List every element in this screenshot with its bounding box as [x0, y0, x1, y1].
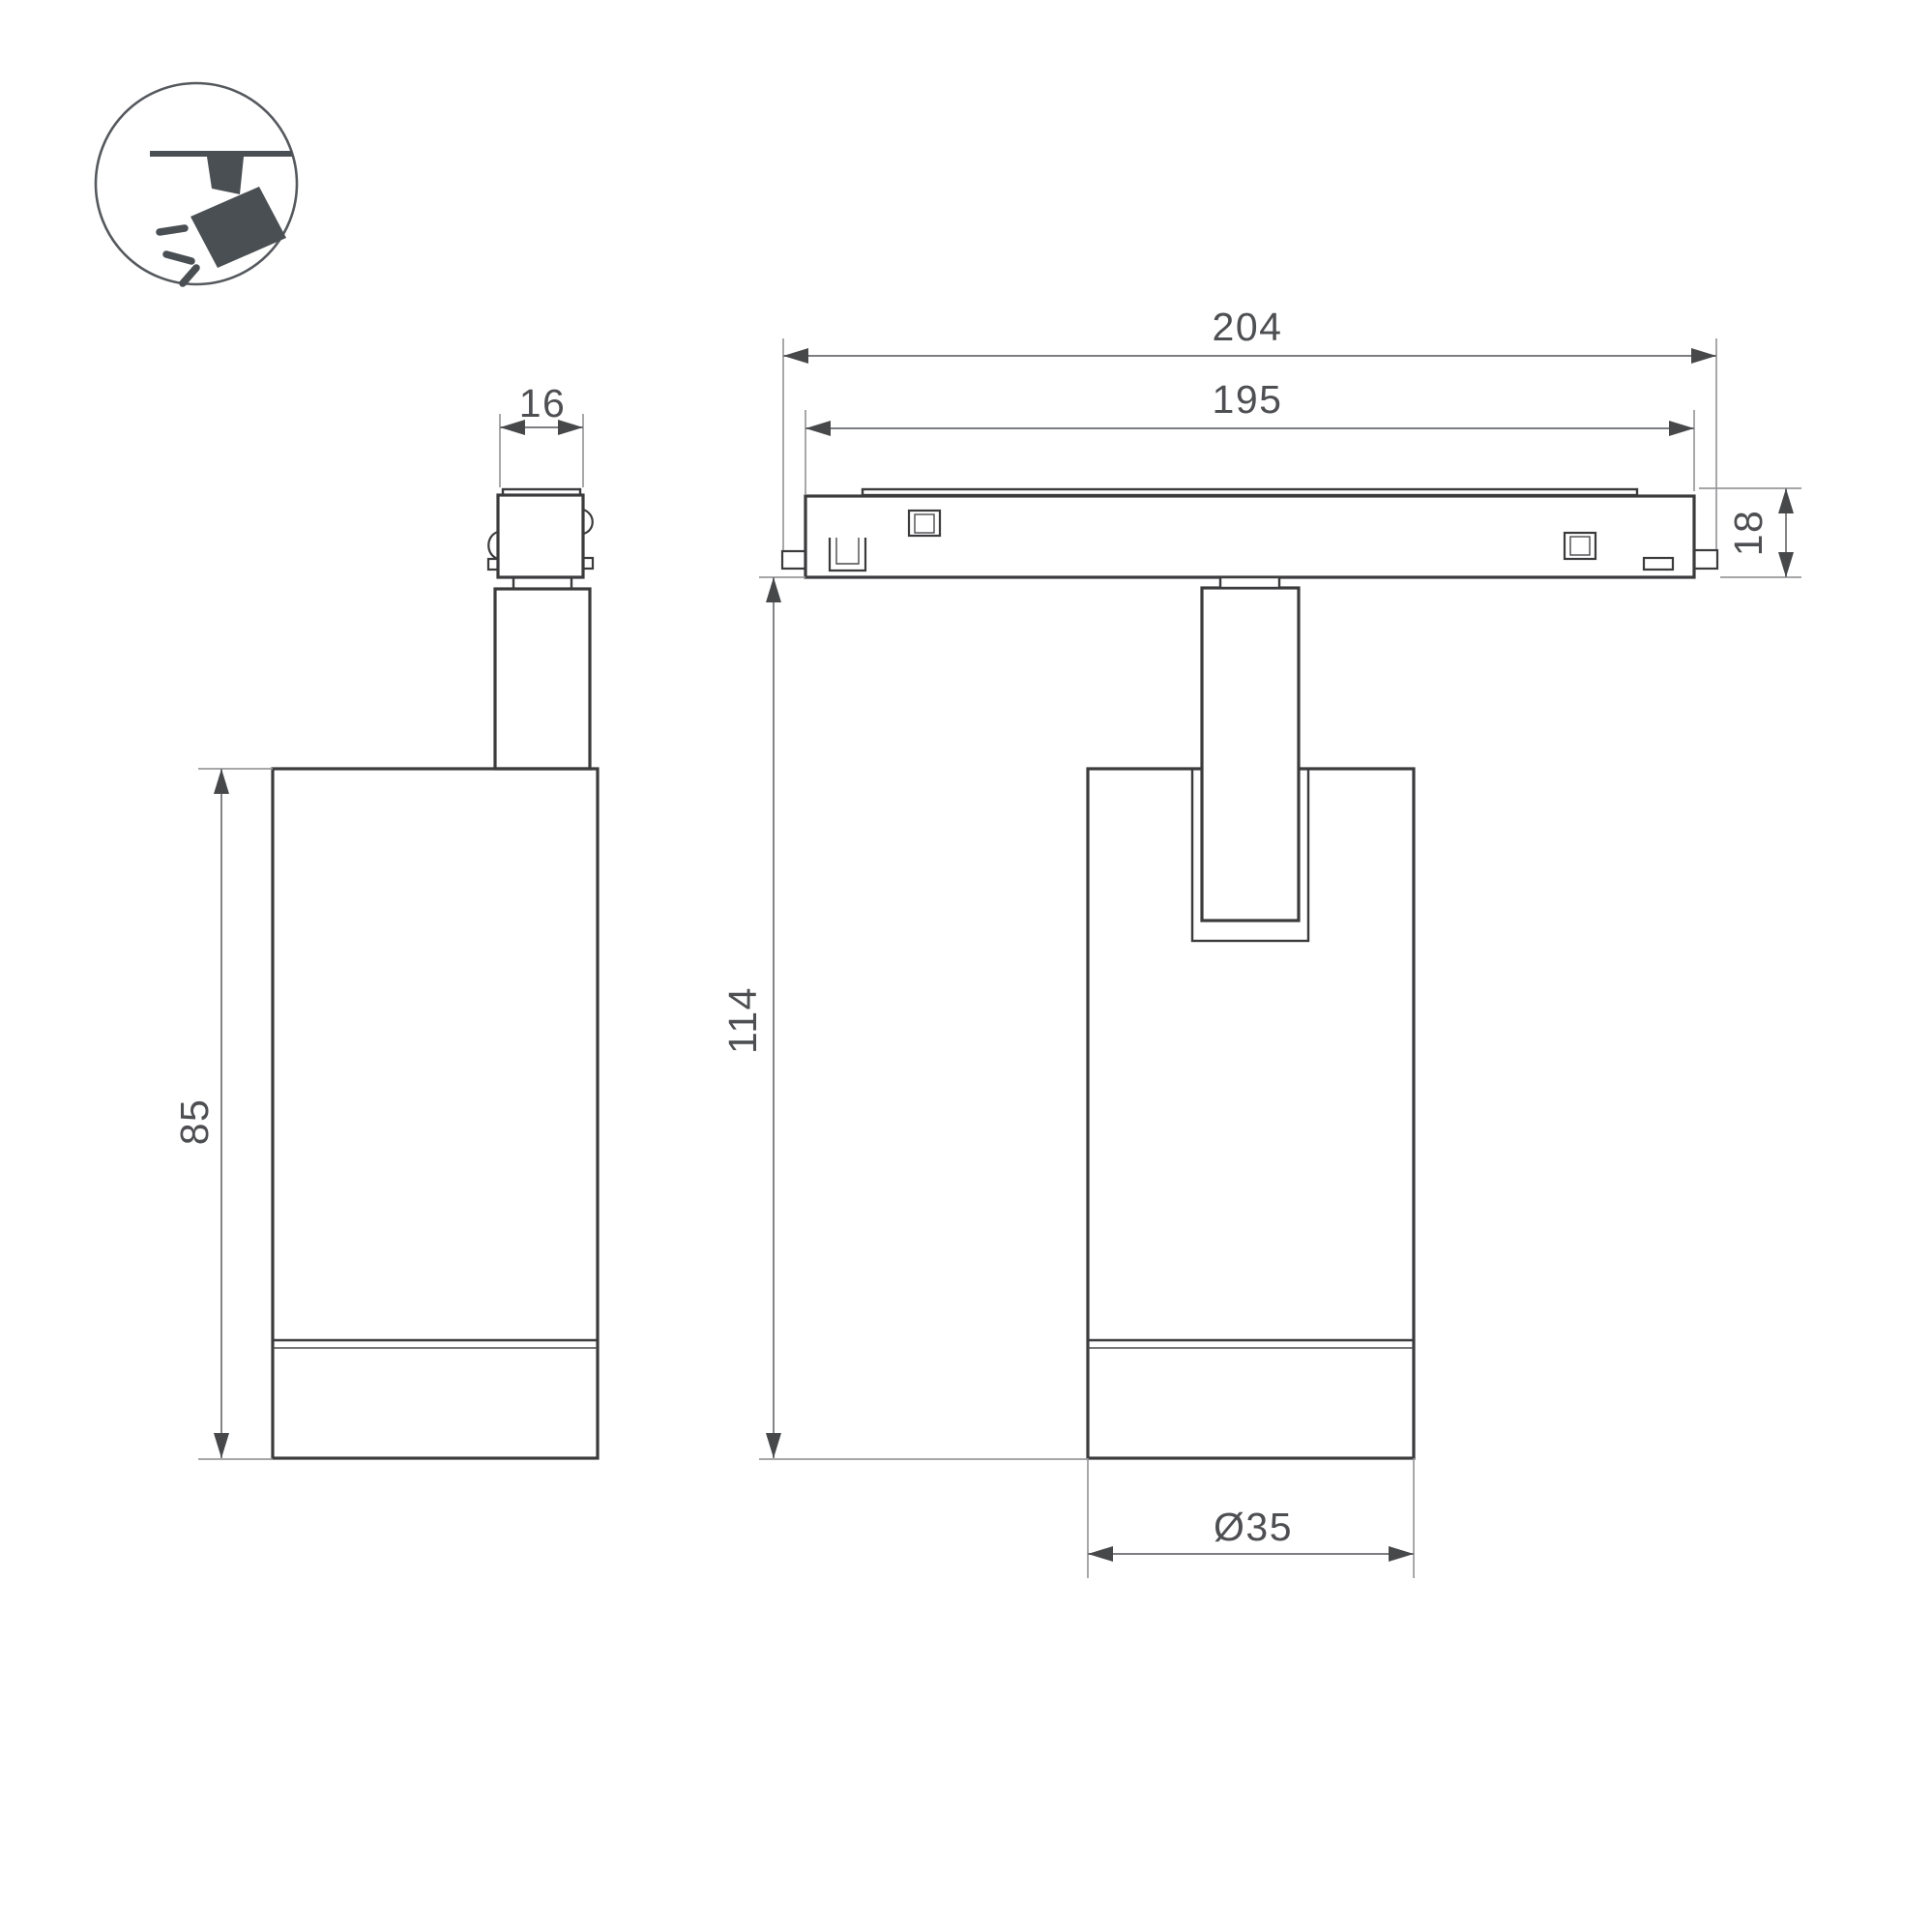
dim-label-18: 18 — [1726, 510, 1771, 557]
icon-ceiling-line — [150, 151, 292, 157]
front-track-bottom-slot — [1644, 558, 1673, 570]
dim-connector-width: 16 — [500, 381, 583, 487]
dim-total-height: 114 — [720, 577, 1088, 1459]
dim-track-body-length: 195 — [805, 377, 1694, 495]
side-view — [273, 489, 598, 1458]
front-track-right-window-inner — [1570, 537, 1590, 555]
dim-label-114: 114 — [720, 986, 765, 1054]
front-track-u-clip-inner — [836, 538, 859, 564]
icon-mount-stem — [207, 157, 244, 194]
dim-label-35: Ø35 — [1214, 1505, 1293, 1549]
side-lamp-body — [273, 769, 598, 1458]
dim-label-195: 195 — [1213, 377, 1283, 422]
spotlight-icon — [96, 83, 297, 284]
dim-label-85: 85 — [172, 1098, 217, 1146]
front-track-right-end-tab — [1694, 550, 1717, 569]
front-track-u-clip-outer — [830, 538, 865, 571]
front-track-left-window-inner — [915, 514, 934, 533]
dim-body-height: 85 — [172, 769, 273, 1459]
dimension-drawing-svg: 16 85 2 — [0, 0, 1932, 1932]
dim-label-16: 16 — [519, 381, 567, 425]
front-track-left-end-tab — [782, 551, 805, 569]
side-neck — [513, 577, 571, 589]
front-stem-arm — [1202, 588, 1299, 921]
front-stem-cap — [1220, 577, 1279, 588]
dim-body-diameter: Ø35 — [1088, 1458, 1414, 1578]
icon-lamp-body — [190, 187, 286, 268]
icon-light-rays — [160, 228, 196, 283]
front-track-top-strip — [863, 489, 1637, 495]
side-track-connector — [498, 495, 583, 577]
drawing-canvas: 16 85 2 — [0, 0, 1932, 1932]
dim-track-height: 18 — [1699, 488, 1801, 577]
side-stem-arm — [495, 589, 590, 769]
icon-circle-border — [96, 83, 297, 284]
front-view — [782, 489, 1717, 1458]
dim-track-outer-length: 204 — [783, 305, 1716, 550]
dim-label-204: 204 — [1213, 305, 1283, 349]
